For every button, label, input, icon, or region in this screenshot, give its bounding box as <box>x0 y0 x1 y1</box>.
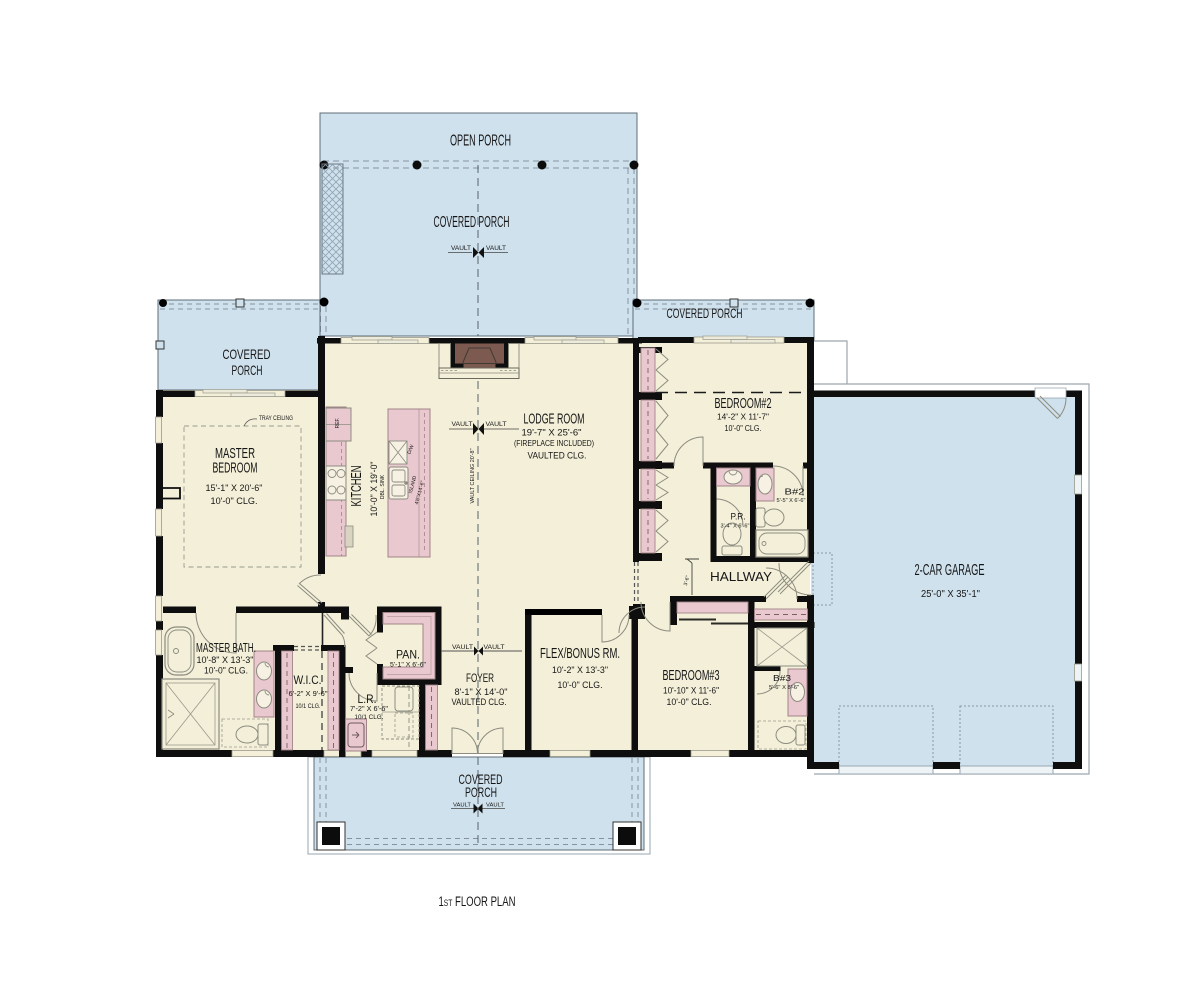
svg-text:VAULTED CLG.: VAULTED CLG. <box>452 697 507 707</box>
svg-text:(FIREPLACE INCLUDED): (FIREPLACE INCLUDED) <box>514 439 594 448</box>
svg-text:10'-8" X 13'-3": 10'-8" X 13'-3" <box>197 655 254 665</box>
svg-text:PORCH: PORCH <box>465 784 497 800</box>
svg-text:VAULT: VAULT <box>451 246 471 252</box>
svg-text:BEDROOM#2: BEDROOM#2 <box>715 396 772 412</box>
svg-text:L.R.: L.R. <box>358 692 377 706</box>
svg-text:REF.: REF. <box>335 418 341 429</box>
svg-text:19'-7" X 25'-6": 19'-7" X 25'-6" <box>522 428 582 439</box>
svg-text:6'-2" X 9'-6": 6'-2" X 9'-6" <box>289 691 329 698</box>
svg-text:OPEN PORCH: OPEN PORCH <box>450 133 511 150</box>
svg-text:10'-2" X 13'-3": 10'-2" X 13'-3" <box>552 665 608 676</box>
svg-text:10'-0" CLG.: 10'-0" CLG. <box>204 666 248 676</box>
svg-text:BEDROOM: BEDROOM <box>213 461 258 477</box>
svg-text:10/1 CLG.: 10/1 CLG. <box>355 714 384 721</box>
svg-text:B#3: B#3 <box>773 673 791 683</box>
svg-text:VAULT: VAULT <box>452 645 473 651</box>
svg-text:5'-6" X 8'-6": 5'-6" X 8'-6" <box>769 685 799 691</box>
svg-text:14'-2" X 11'-7": 14'-2" X 11'-7" <box>717 412 769 422</box>
svg-text:VAULT: VAULT <box>452 422 473 428</box>
svg-text:10'-0" CLG.: 10'-0" CLG. <box>667 697 712 708</box>
svg-text:PAN.: PAN. <box>396 648 420 662</box>
svg-text:3'-4" X 6'-6": 3'-4" X 6'-6" <box>721 524 750 530</box>
svg-text:VAULT: VAULT <box>486 422 507 428</box>
svg-text:7'-2" X 6'-6": 7'-2" X 6'-6" <box>350 706 389 713</box>
svg-text:DBL. SINK: DBL. SINK <box>380 474 386 499</box>
svg-text:MASTER BATH.: MASTER BATH. <box>196 640 256 655</box>
svg-text:5'-5" X 6'-6": 5'-5" X 6'-6" <box>777 498 806 504</box>
svg-text:VAULTED CLG.: VAULTED CLG. <box>528 451 587 462</box>
svg-text:10'-0" CLG.: 10'-0" CLG. <box>558 680 603 691</box>
svg-text:LODGE ROOM: LODGE ROOM <box>524 412 585 428</box>
svg-text:8'-1" X 14'-0": 8'-1" X 14'-0" <box>455 687 508 697</box>
svg-text:TRAY CEILING: TRAY CEILING <box>259 416 293 422</box>
svg-text:VAULT: VAULT <box>486 246 506 252</box>
svg-text:FOYER: FOYER <box>466 671 494 685</box>
svg-text:2-CAR GARAGE: 2-CAR GARAGE <box>915 562 985 579</box>
svg-text:10'-0" CLG.: 10'-0" CLG. <box>211 496 258 507</box>
svg-text:HALLWAY: HALLWAY <box>710 569 772 584</box>
svg-text:15'-1" X 20'-6": 15'-1" X 20'-6" <box>206 483 263 494</box>
svg-text:PORCH: PORCH <box>232 362 263 378</box>
svg-text:FLEX/BONUS RM.: FLEX/BONUS RM. <box>540 646 620 662</box>
svg-text:COVERED PORCH: COVERED PORCH <box>667 305 743 321</box>
svg-text:10'-10" X 11'-6": 10'-10" X 11'-6" <box>663 686 719 697</box>
svg-text:5'-1" X 6'-6": 5'-1" X 6'-6" <box>390 662 427 669</box>
svg-text:W.I.C.: W.I.C. <box>294 673 322 687</box>
svg-text:COVERED: COVERED <box>223 346 271 362</box>
svg-text:10/1 CLG.: 10/1 CLG. <box>296 703 321 710</box>
svg-text:10'-0" X 19'-0": 10'-0" X 19'-0" <box>369 462 380 517</box>
svg-text:VAULT: VAULT <box>453 803 471 809</box>
svg-text:VAULT: VAULT <box>484 645 505 651</box>
svg-text:KITCHEN: KITCHEN <box>349 466 365 507</box>
svg-text:VAULT CEILING 20'-8": VAULT CEILING 20'-8" <box>470 448 476 503</box>
svg-text:25'-0" X 35'-1": 25'-0" X 35'-1" <box>921 589 980 600</box>
svg-text:BEDROOM#3: BEDROOM#3 <box>663 668 720 684</box>
svg-text:P.R.: P.R. <box>731 512 746 522</box>
svg-text:COVERED PORCH: COVERED PORCH <box>434 214 510 231</box>
svg-text:10'-0" CLG.: 10'-0" CLG. <box>725 423 762 433</box>
svg-text:B#2: B#2 <box>785 487 805 497</box>
svg-text:VAULT: VAULT <box>486 803 504 809</box>
